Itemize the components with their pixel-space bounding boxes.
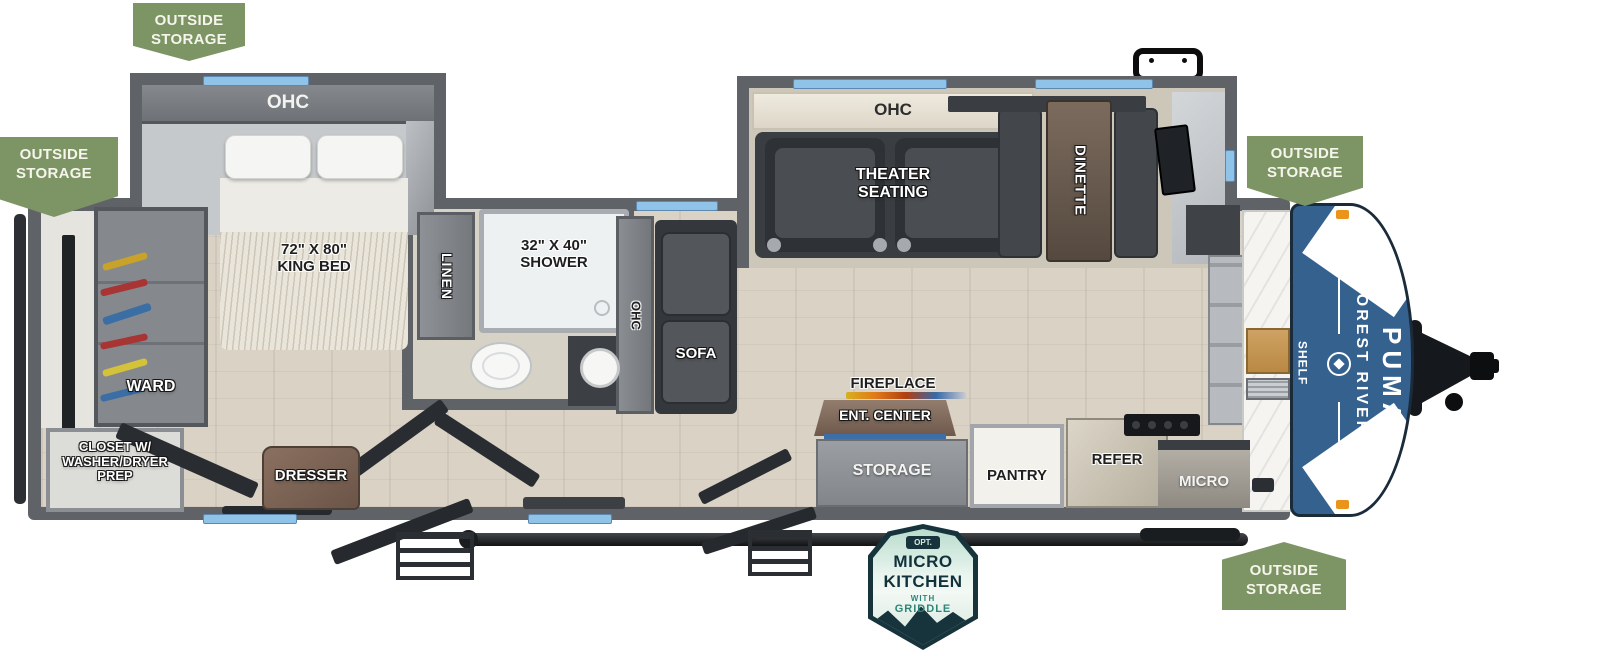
bedroom-ohc-label: OHC	[142, 92, 434, 113]
living-ohc-label: OHC	[752, 100, 1034, 119]
micro-kitchen-option-badge: OPT. MICRO KITCHEN WITH GRIDDLE	[868, 524, 978, 650]
brand-make-label: FOREST RIVER	[1346, 228, 1370, 488]
marker-light-icon	[1336, 500, 1349, 509]
rear-door-panel	[62, 235, 75, 430]
micro-label: MICRO	[1158, 474, 1250, 491]
cap-deco-line-top	[1338, 246, 1340, 334]
kitchen-faucet	[1252, 478, 1274, 492]
ent-center-label: ENT. CENTER	[814, 408, 956, 424]
sofa-label: SOFA	[655, 346, 737, 363]
storage-label: STORAGE	[816, 462, 968, 480]
king-bed-name: KING BED	[220, 259, 408, 276]
outside-storage-badge-top-left: OUTSIDE STORAGE	[133, 3, 245, 61]
slide-side-window-strip	[1225, 150, 1235, 182]
dinette-label: DINETTE	[1046, 100, 1112, 262]
pantry-cabinet	[970, 424, 1064, 508]
bed-pillow-left	[225, 135, 311, 179]
sofa-ohc-label: OHC	[616, 216, 654, 414]
entry-threshold	[523, 497, 625, 509]
living-window-strip-left	[793, 79, 947, 89]
fireplace-flame-strip	[846, 392, 966, 399]
floorplan-canvas: OHC 72" X 80" KING BED WARD CLOSET W/ WA…	[0, 0, 1600, 656]
bedroom-window-strip	[203, 76, 309, 86]
linen-label: LINEN	[417, 212, 475, 340]
option-badge-opt-pill: OPT.	[906, 536, 940, 549]
entry-step-frame	[396, 532, 474, 580]
cooktop-grill	[1124, 414, 1200, 436]
wood-cutting-shelf	[1246, 328, 1290, 374]
front-cabinet-column	[1208, 255, 1244, 425]
cap-bottom-trim	[1140, 528, 1240, 541]
brand-model-label: PUMA	[1372, 292, 1406, 462]
bed-sheet	[220, 178, 408, 234]
range-hood-cabinet	[1186, 205, 1240, 255]
cap-deco-line-bottom	[1338, 402, 1340, 490]
toilet	[470, 342, 532, 390]
bed-pillow-right	[317, 135, 403, 179]
king-bed-label: 72" X 80" KING BED	[220, 242, 408, 276]
hitch-a-frame	[1408, 316, 1500, 420]
dresser-label: DRESSER	[258, 468, 364, 485]
refer-label: REFER	[1066, 452, 1168, 469]
option-badge-line3: WITH	[873, 594, 973, 603]
wardrobe-label: WARD	[99, 378, 203, 396]
fireplace-label: FIREPLACE	[828, 376, 958, 393]
outside-storage-badge-right: OUTSIDE STORAGE	[1247, 136, 1363, 206]
shelf-label: SHELF	[1292, 328, 1312, 398]
dinette-bench-right	[1114, 108, 1158, 258]
living-window-strip-right	[1035, 79, 1153, 89]
washer-dryer-closet-label: CLOSET W/ WASHER/DRYER PREP	[42, 440, 188, 484]
bottom-window-strip	[203, 514, 297, 524]
pantry-label: PANTRY	[970, 468, 1064, 485]
rear-bumper	[14, 214, 26, 504]
center-window-strip	[636, 201, 718, 211]
griddle	[1246, 378, 1290, 400]
option-badge-line2: KITCHEN	[873, 572, 973, 592]
entry-step-frame	[748, 530, 812, 576]
bathroom-sink	[580, 348, 620, 388]
shower-label: 32" X 40" SHOWER	[479, 238, 629, 272]
bottom-window-strip	[528, 514, 612, 524]
king-bed-size: 72" X 80"	[220, 242, 408, 259]
awning-rail	[470, 533, 1248, 546]
sofa	[655, 220, 737, 414]
marker-light-icon	[1336, 210, 1349, 219]
outside-storage-badge-bottom-right: OUTSIDE STORAGE	[1222, 542, 1346, 610]
option-badge-line1: MICRO	[873, 552, 973, 572]
theater-seating-label: THEATER SEATING	[770, 166, 1016, 202]
sofa-cushion	[661, 232, 731, 316]
shower-drain-icon	[594, 300, 610, 316]
option-badge-line4: GRIDDLE	[873, 603, 973, 615]
